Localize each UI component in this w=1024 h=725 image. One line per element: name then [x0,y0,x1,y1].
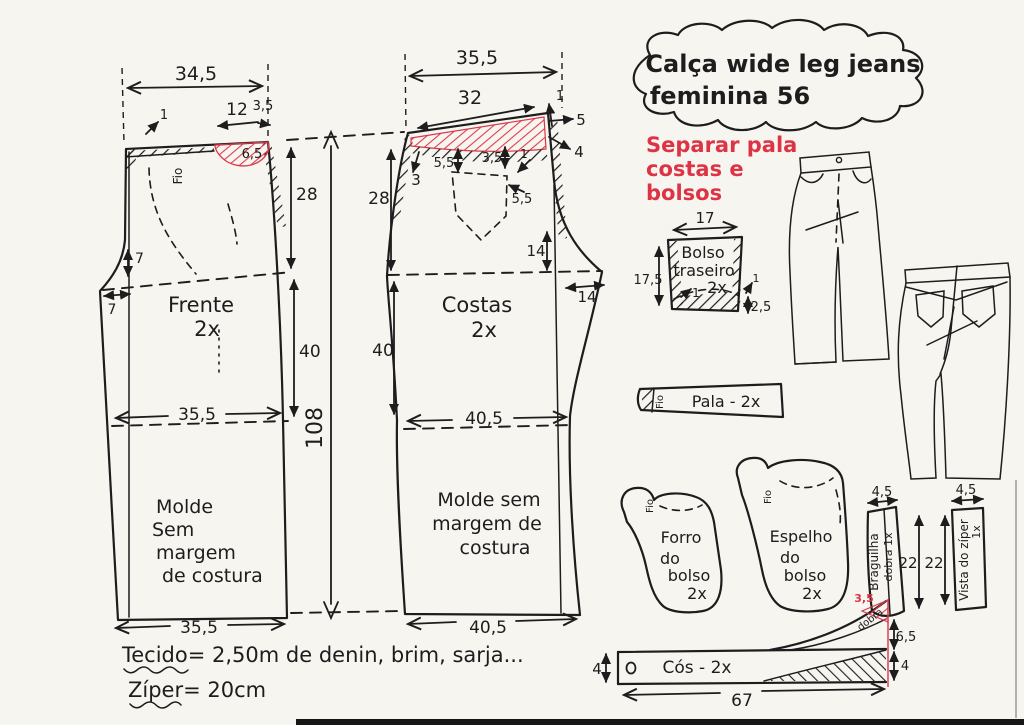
frente-molde-line1: Molde [156,496,213,518]
costas-qty-label: 2x [471,318,497,342]
jeans-back-sketch [898,263,1010,479]
bolso-width-label: 17 [695,209,714,227]
bolso-hem-label: 2,5 [751,300,772,315]
cos-label: Cós - 2x [663,658,732,678]
frente-molde-line2: Sem [152,519,194,541]
bolso-m1b-label: 1 [753,272,760,285]
forro-label-line4: 2x [687,584,707,603]
braguilha-fold-label: dobra 1x [882,532,895,581]
vista-label: Vista do zíper [957,519,971,601]
costas-length-label: 40 [372,341,394,361]
frente-pocket-depth-label: 6,5 [242,147,263,162]
costas-rise-label: 28 [368,189,390,209]
pala-piece: Fio Pala - 2x [638,384,783,417]
forro-label-line3: bolso [668,566,711,585]
costas-hem-width-label: 40,5 [469,618,507,638]
pala-label: Pala - 2x [692,392,761,411]
costas-14v-label: 14 [526,242,545,260]
espelho-label-line3: bolso [784,566,827,585]
frente-rise-label: 28 [296,185,318,205]
espelho-label-line2: do [780,548,800,567]
title-cloud: Calça wide leg jeans feminina 56 [634,20,923,130]
espelho-grainline-label: Fio [763,490,774,504]
costas-name-label: Costas [442,293,513,317]
costas-yoke-right-label: 3,5 [482,151,503,166]
cos-ext-label: 6,5 [896,630,917,645]
bolso-m1-label: 1 [692,286,700,300]
costas-top-width-label: 35,5 [456,47,498,69]
costas-14h-label: 14 [577,288,596,306]
braguilha-label: Braguilha [867,533,881,590]
frente-piece: 34,5 1 12 3,5 6,5 Fio 28 7 7 Frente 2x 4… [100,63,321,638]
espelho-piece: Fio Espelho do bolso 2x [737,458,848,612]
red-note-line2: costas e [646,157,744,181]
jeans-front-sketch [789,152,889,364]
costas-molde-line2: margem de [432,513,542,535]
costas-knee-width-label: 40,5 [465,409,503,429]
costas-piece: 35,5 32 1 5 4 3 5,5 3,5 1 5,5 28 40 14 1… [368,47,604,638]
frente-molde-line3: margem [156,542,236,564]
frente-7v-label: 7 [135,251,144,267]
forro-grainline-label: Fio [645,499,656,513]
frente-knee-width-label: 35,5 [178,405,216,425]
costas-m5-label: 5 [576,111,586,129]
costas-m3-label: 3 [411,171,421,189]
frente-m1-label: 1 [160,108,168,123]
forro-piece: Fio Forro do bolso 2x [622,488,722,613]
frente-name-label: Frente [168,293,234,317]
frente-qty-label: 2x [194,317,220,341]
costas-pocket-pos-label: 5,5 [512,192,533,207]
espelho-label-line4: 2x [802,584,822,603]
pala-grainline-label: Fio [655,395,666,409]
total-length-label: 108 [303,407,328,449]
frente-grainline-label: Fio [171,168,185,185]
forro-label-line1: Forro [661,528,702,547]
vista-width-label: 4,5 [956,483,977,498]
fabric-note: Tecido= 2,50m de denin, brim, sarja... [121,643,524,667]
bolso-height-label: 17,5 [634,273,663,288]
costas-yoke-left-label: 5,5 [434,156,455,171]
braguilha-piece: 4,5 22 Braguilha dobra 1x [867,485,919,616]
frente-m35-label: 3,5 [253,99,274,114]
red-note-line1: Separar pala [646,133,797,157]
footer-notes: Tecido= 2,50m de denin, brim, sarja... Z… [121,643,524,708]
costas-molde-line3: costura [460,537,531,559]
frente-pocket-opening-label: 12 [226,100,248,120]
frente-7h-label: 7 [108,302,117,318]
page-title-line1: Calça wide leg jeans [645,50,920,78]
cos-band-label: 4 [901,659,909,674]
scanned-sewing-pattern-page: 34,5 1 12 3,5 6,5 Fio 28 7 7 Frente 2x 4… [0,0,1024,725]
red-note-line3: bolsos [646,181,722,205]
braguilha-width-label: 4,5 [872,485,893,500]
costas-pocket-dashed [452,172,507,240]
costas-m1-top-label: 1 [556,89,564,104]
costas-molde-line1: Molde sem [437,489,540,511]
cos-length-label: 67 [731,691,753,711]
scan-edge-bar [296,719,1024,725]
frente-length-label: 40 [299,342,321,362]
bolso-label-line1: Bolso [681,243,724,262]
cos-buttonhole [627,663,636,674]
red-note: Separar pala costas e bolsos [646,133,797,205]
bolso-traseiro-piece: 17 17,5 Bolso traseiro 2x 1 1 2,5 [634,209,772,315]
frente-hem-width-label: 35,5 [180,618,218,638]
cos-piece: 4 Cós - 2x 67 6,5 4 3,5 dobra [592,592,916,711]
pattern-drawing: 34,5 1 12 3,5 6,5 Fio 28 7 7 Frente 2x 4… [0,0,1024,725]
bolso-label-line3: 2x [707,278,727,297]
vista-qty-label: 1x [970,525,983,539]
cos-height-left-label: 4 [592,660,602,678]
vista-height-label: 22 [924,554,943,572]
cos-fold-width-label: 3,5 [854,592,874,605]
page-title-line2: feminina 56 [650,82,810,110]
braguilha-height-label: 22 [898,554,917,572]
frente-top-width-label: 34,5 [175,63,217,85]
costas-yoke-width-label: 32 [458,87,482,109]
frente-molde-line4: de costura [162,565,263,587]
espelho-label-line1: Espelho [770,527,833,546]
vista-piece: 4,5 22 Vista do zíper 1x [924,483,986,610]
costas-m4-label: 4 [574,143,584,161]
costas-m1-mid-label: 1 [520,147,528,161]
zipper-note: Zíper= 20cm [128,678,266,702]
